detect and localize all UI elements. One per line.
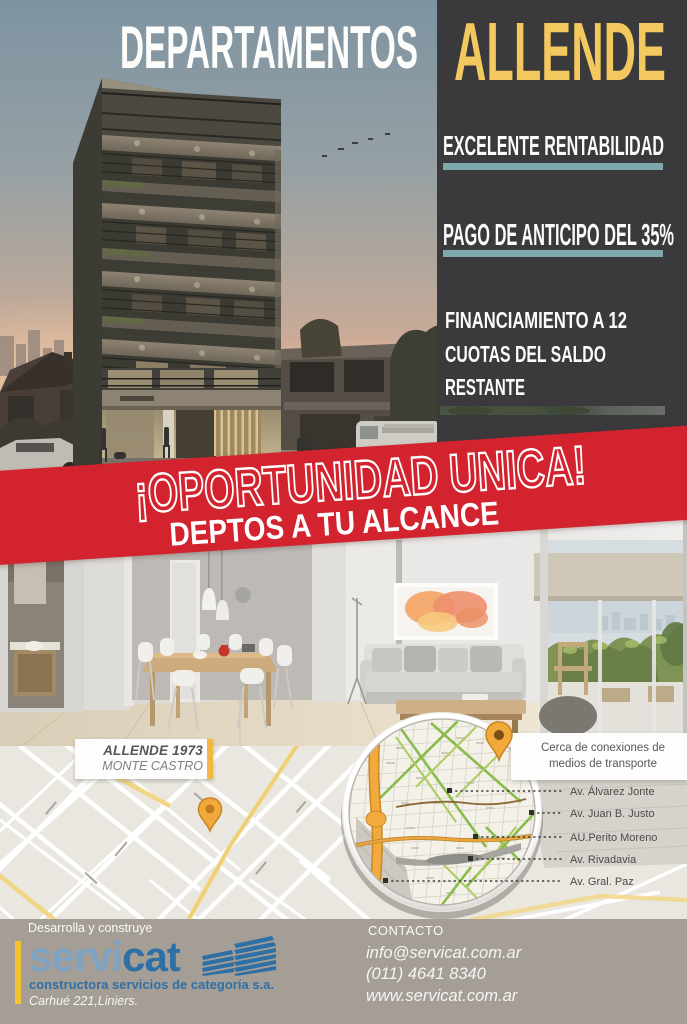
svg-text:Av. Álvarez Jonte: Av. Álvarez Jonte	[570, 785, 655, 798]
svg-text:FINANCIAMIENTO A 12: FINANCIAMIENTO A 12	[445, 307, 627, 333]
svg-text:Av. Rivadavia: Av. Rivadavia	[570, 854, 637, 866]
svg-text:AU.Perito Moreno: AU.Perito Moreno	[570, 832, 657, 844]
svg-text:DEPARTAMENTOS: DEPARTAMENTOS	[120, 14, 418, 80]
svg-text:PAGO DE ANTICIPO DEL 35%: PAGO DE ANTICIPO DEL 35%	[443, 217, 674, 252]
svg-text:ALLENDE: ALLENDE	[454, 5, 666, 98]
svg-text:CUOTAS DEL SALDO: CUOTAS DEL SALDO	[445, 341, 606, 367]
svg-text:EXCELENTE RENTABILIDAD: EXCELENTE RENTABILIDAD	[443, 130, 664, 161]
svg-text:RESTANTE: RESTANTE	[445, 374, 525, 400]
svg-text:Av. Gral. Paz: Av. Gral. Paz	[570, 876, 634, 888]
svg-text:Av. Juan B. Justo: Av. Juan B. Justo	[570, 808, 655, 820]
